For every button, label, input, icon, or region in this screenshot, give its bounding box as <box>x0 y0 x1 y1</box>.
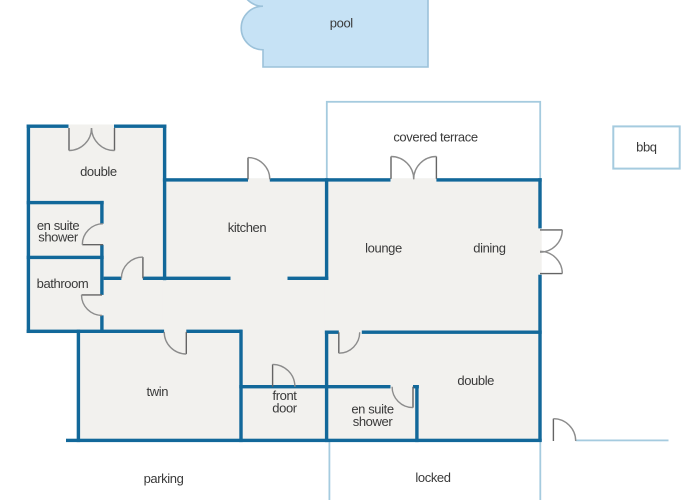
svg-text:door: door <box>272 401 297 416</box>
svg-text:shower: shower <box>353 414 394 429</box>
svg-text:shower: shower <box>38 230 79 245</box>
svg-text:parking: parking <box>144 471 184 486</box>
svg-text:kitchen: kitchen <box>228 220 267 235</box>
svg-text:bathroom: bathroom <box>37 276 89 291</box>
svg-text:dining: dining <box>473 241 505 256</box>
svg-text:locked: locked <box>415 470 450 485</box>
svg-text:pool: pool <box>330 15 353 30</box>
svg-text:twin: twin <box>147 384 169 399</box>
svg-text:lounge: lounge <box>365 240 402 255</box>
svg-text:double: double <box>457 373 494 388</box>
svg-text:double: double <box>80 164 117 179</box>
svg-text:bbq: bbq <box>636 139 657 154</box>
svg-text:covered terrace: covered terrace <box>393 130 477 145</box>
